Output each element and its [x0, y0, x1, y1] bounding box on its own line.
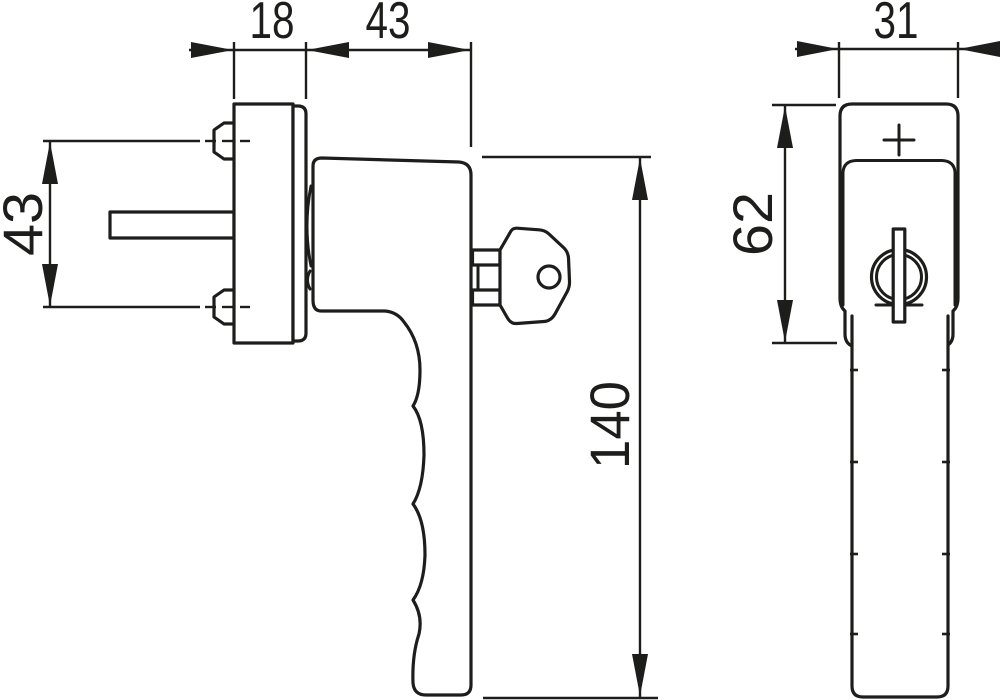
dimension-label-head-depth: 43: [366, 0, 411, 50]
key-blade-front: [893, 229, 905, 322]
arrowhead: [42, 142, 58, 184]
grip-front: [852, 316, 948, 697]
front-view: 31 62: [721, 0, 1000, 697]
dimension-label-screw-spacing: 43: [0, 192, 54, 256]
technical-drawing-page: 18 43 43 140: [0, 0, 1000, 700]
dimension-label-total-length: 140: [578, 381, 641, 469]
key-shank-bottom: [473, 290, 501, 305]
dimension-front-width: 31: [795, 0, 1000, 98]
arrowhead: [797, 41, 838, 57]
arrowhead: [959, 41, 1000, 57]
arrowhead: [777, 106, 793, 148]
arrowhead: [632, 158, 648, 200]
dimension-base-height: 62: [721, 105, 837, 343]
neck-arc-outer: [307, 186, 311, 266]
key-icon: [473, 228, 570, 323]
arrowhead: [42, 264, 58, 306]
window-handle-technical-drawing: 18 43 43 140: [0, 0, 1000, 700]
dimension-label-plate-depth: 18: [250, 0, 295, 50]
dimension-label-front-width: 31: [874, 0, 919, 50]
side-view: 18 43 43 140: [0, 0, 658, 698]
neck-arc-inner: [308, 271, 311, 289]
arrowhead: [632, 654, 648, 696]
key-bow-hole: [538, 266, 560, 288]
arrowhead: [428, 42, 470, 58]
backplate-face: [293, 106, 306, 341]
spindle: [110, 212, 234, 238]
handle-outline: [313, 158, 471, 695]
arrowhead: [307, 42, 349, 58]
key-shank-top: [473, 250, 501, 265]
dimension-label-base-height: 62: [721, 192, 784, 256]
arrowhead: [777, 300, 793, 342]
arrowhead: [191, 42, 233, 58]
